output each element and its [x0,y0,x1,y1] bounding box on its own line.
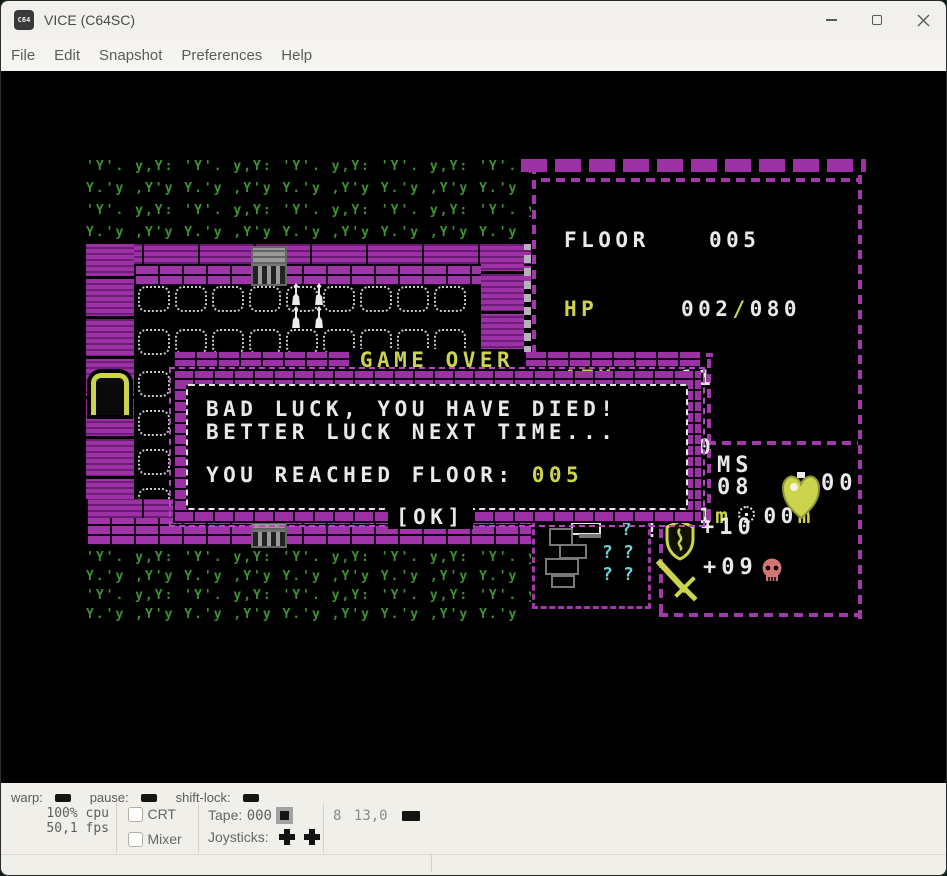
window-title: VICE (C64SC) [44,12,135,28]
gate-top [251,246,287,286]
floor-tile [360,286,392,312]
minimap-question-mark: ? [602,542,613,563]
menu-snapshot[interactable]: Snapshot [99,47,162,64]
joystick1-icon[interactable] [279,829,295,845]
floor-tile [212,286,244,312]
stat-floor: FLOOR005 [564,229,854,252]
statusbar-divider [1,854,946,855]
pawn-icon [312,306,326,328]
potion-icon [780,471,822,521]
floor-tile [138,449,170,475]
dialog-line3: YOU REACHED FLOOR: 005 [206,464,686,487]
grass-field-bottom: 'Y'. y,Y: 'Y'. y,Y: 'Y'. y,Y: 'Y'. y,Y: … [86,548,531,622]
mixer-label: Mixer [147,831,181,847]
close-icon [917,14,930,27]
joysticks-label: Joysticks: [208,829,269,845]
pause-label: pause: [90,790,129,805]
vice-window: C64 VICE (C64SC) File Edit Snapshot Pref… [0,0,947,876]
statusbar-tick [431,854,432,872]
tape-motor-icon[interactable] [276,807,293,824]
sword-icon [655,559,701,603]
white-pawn-statues [289,283,326,328]
maximize-icon [872,15,882,25]
fps-counter: 50,1 fps [29,821,109,836]
minimap-question-mark: ? [602,564,613,585]
joystick2-icon[interactable] [304,829,320,845]
game-over-dialog: GAME OVER BAD LUCK, YOU HAVE DIED! BETTE… [173,349,701,523]
ms-value: 08 [717,477,754,499]
pause-led[interactable] [141,794,157,802]
menu-help[interactable]: Help [281,47,312,64]
floor-tile [397,286,429,312]
floor-tile [175,286,207,312]
minimap-corridor [579,534,601,538]
menu-edit[interactable]: Edit [54,47,80,64]
stats-border-left [532,172,536,354]
floor-tile [138,329,170,355]
ok-button[interactable]: [OK] [388,506,473,529]
floor-tile [434,286,466,312]
titlebar: C64 VICE (C64SC) [1,1,946,39]
ms-label: MS [717,455,754,477]
stats-border-top [541,178,858,182]
drive-track: 13,0 [354,808,388,824]
hud-border-right [858,172,862,619]
cpu-percentage: 100% cpu [29,806,109,821]
skull-icon [758,557,786,585]
dialog-border-right [524,352,701,368]
app-icon: C64 [14,10,34,30]
hud-border-top [521,159,866,172]
close-button[interactable] [900,1,946,39]
tape-counter: 000 [247,808,272,824]
dialog-title: GAME OVER [350,349,524,372]
floor-tile [138,410,170,436]
emulator-screen: 'Y'. y,Y: 'Y'. y,Y: 'Y'. y,Y: 'Y'. y,Y: … [1,71,947,785]
potion-count: 00 [821,473,858,495]
dialog-line1: BAD LUCK, YOU HAVE DIED! [206,398,686,421]
reached-floor-value: 005 [532,463,583,487]
pawn-icon [312,283,326,305]
floor-tile [249,286,281,312]
shield-bonus: +10 [701,517,756,539]
pawn-icon [289,283,303,305]
grass-field-top: 'Y'. y,Y: 'Y'. y,Y: 'Y'. y,Y: 'Y'. y,Y: … [86,156,531,244]
drive-led[interactable] [402,811,420,821]
floor-tile [323,286,355,312]
minimize-icon [826,19,837,21]
minimap-room [559,544,587,559]
wall-right-edge [524,244,531,354]
crt-label: CRT [147,806,176,822]
yellow-door [91,373,129,415]
warp-label: warp: [11,790,43,805]
minimap-room [545,558,579,575]
pawn-icon [289,306,303,328]
dungeon-wall-right [481,244,524,354]
floor-value: 005 [681,229,760,252]
floor-tile [138,371,170,397]
minimap-question-mark: ? [623,564,634,585]
maximize-button[interactable] [854,1,900,39]
tape-label: Tape: [208,807,242,823]
shield-icon [664,519,696,561]
minimize-button[interactable] [808,1,854,39]
menubar: File Edit Snapshot Preferences Help [1,39,946,71]
hp-current: 002 [681,298,732,321]
dialog-line2: BETTER LUCK NEXT TIME... [206,421,686,444]
floor-tile [138,286,170,312]
shiftlock-led[interactable] [243,794,259,802]
dialog-border-left [173,352,350,368]
mixer-checkbox[interactable] [128,832,143,847]
stat-hp: HP002/080 [564,298,854,321]
shiftlock-label: shift-lock: [176,790,231,805]
dungeon-wall-top [86,244,531,264]
vice-statusbar: warp: pause: shift-lock: 100% cpu 50,1 f… [1,783,946,875]
menu-preferences[interactable]: Preferences [181,47,262,64]
minimap-room [551,575,575,588]
crt-checkbox[interactable] [128,807,143,822]
sword-bonus: +09 [703,557,758,579]
minimap-question-mark: ? [623,542,634,563]
warp-led[interactable] [55,794,71,802]
menu-file[interactable]: File [11,47,35,64]
hp-max: 080 [750,298,801,321]
drive-number: 8 [333,808,341,824]
dialog-frame: BAD LUCK, YOU HAVE DIED! BETTER LUCK NEX… [173,371,701,523]
